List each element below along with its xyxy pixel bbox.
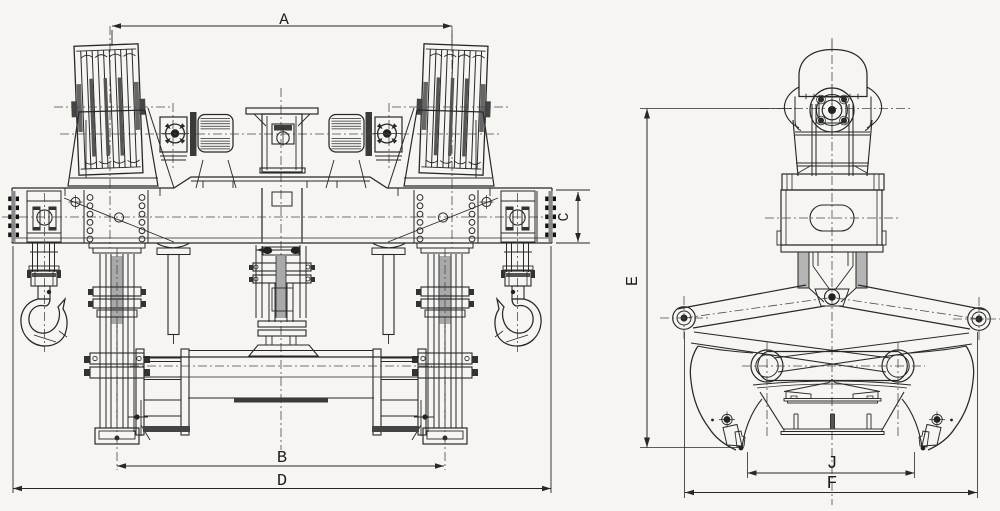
svg-text:E: E — [624, 276, 643, 286]
svg-text:F: F — [827, 474, 838, 494]
svg-text:J: J — [827, 454, 838, 474]
svg-text:D: D — [277, 472, 287, 491]
svg-text:B: B — [277, 449, 287, 468]
svg-text:C: C — [556, 212, 573, 221]
svg-text:A: A — [279, 11, 289, 29]
